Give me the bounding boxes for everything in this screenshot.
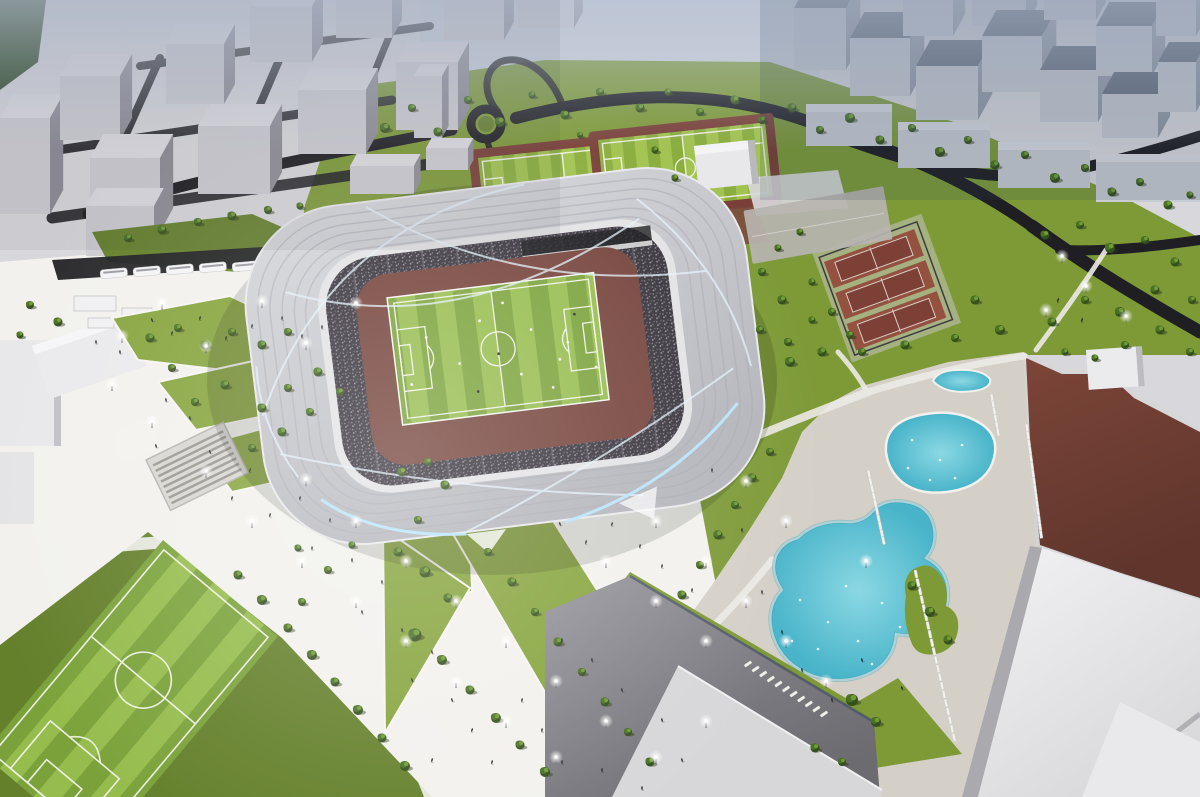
- lamp-post: [859, 554, 873, 568]
- swimmer: [939, 459, 942, 462]
- lamp-post: [819, 674, 833, 688]
- pool-medium: [886, 413, 995, 493]
- swimmer: [845, 585, 848, 588]
- rendering-canvas: [0, 0, 1200, 797]
- swimmer: [907, 467, 910, 470]
- swimmer: [954, 477, 957, 480]
- swimmer: [817, 648, 820, 651]
- swimmer: [911, 439, 914, 442]
- swimmer: [961, 444, 964, 447]
- lamp-post: [1055, 249, 1069, 263]
- lamp-post: [1079, 279, 1093, 293]
- lamp-post: [1119, 309, 1133, 323]
- swimmer: [899, 626, 902, 629]
- stadium-aerial-rendering: [0, 0, 1200, 797]
- lamp-post: [1039, 303, 1053, 317]
- swimmer: [827, 621, 830, 624]
- city-night-tint: [760, 0, 1200, 200]
- pool-small: [933, 370, 990, 392]
- swimmer: [929, 479, 932, 482]
- swimmer: [871, 663, 874, 666]
- swimmer: [857, 640, 860, 643]
- swimmer: [881, 602, 884, 605]
- city-dim-tint: [0, 0, 560, 250]
